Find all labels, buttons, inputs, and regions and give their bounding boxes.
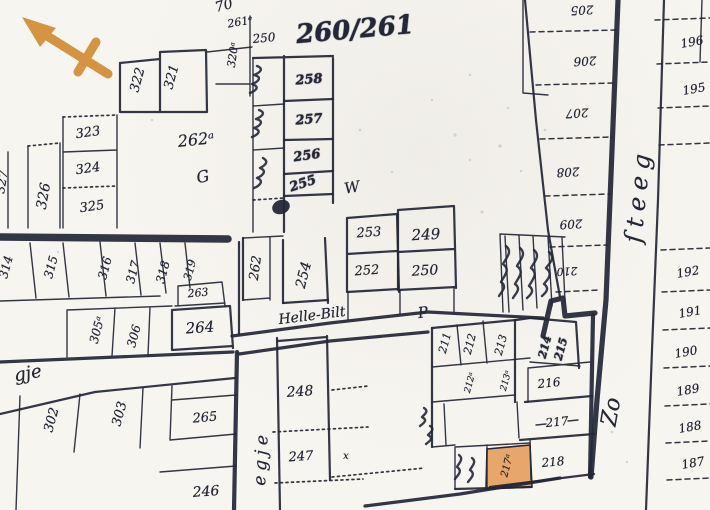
parcel-lines-248 [273, 336, 425, 483]
parcel-lines-right-column [655, 0, 710, 480]
illegible-ink-marks [250, 66, 552, 482]
north-arrow-icon [22, 17, 108, 74]
map-canvas: 70261ᵉ250260/261322321320ᵃ32332432532632… [0, 0, 710, 510]
parcel-lines-topleft [8, 16, 252, 228]
parcel-lines-column [253, 56, 333, 232]
parcel-lines-middle [243, 206, 456, 320]
map-linework [0, 0, 710, 510]
parcel-lines-left-rows [0, 242, 236, 510]
